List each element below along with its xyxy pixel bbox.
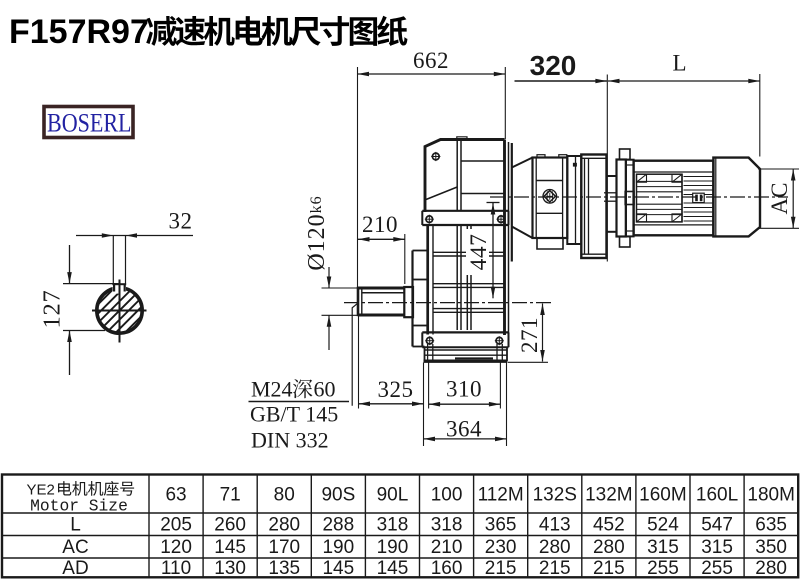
- svg-text:190: 190: [377, 537, 409, 558]
- svg-text:130: 130: [214, 558, 246, 579]
- svg-text:60: 60: [314, 377, 336, 402]
- svg-text:447: 447: [466, 234, 492, 271]
- svg-text:160L: 160L: [696, 485, 738, 506]
- svg-text:230: 230: [485, 537, 517, 558]
- svg-text:364: 364: [446, 417, 482, 442]
- svg-text:524: 524: [647, 515, 679, 536]
- svg-text:255: 255: [647, 558, 679, 579]
- svg-text:DIN 332: DIN 332: [251, 428, 329, 453]
- svg-text:288: 288: [322, 515, 354, 536]
- svg-text:215: 215: [593, 558, 625, 579]
- svg-text:AC: AC: [62, 537, 88, 558]
- svg-text:32: 32: [169, 209, 193, 234]
- svg-text:365: 365: [485, 515, 517, 536]
- svg-text:127: 127: [38, 290, 65, 329]
- svg-text:135: 135: [268, 558, 300, 579]
- svg-text:M24: M24: [251, 377, 293, 402]
- svg-text:271: 271: [517, 317, 542, 353]
- svg-text:280: 280: [755, 558, 787, 579]
- svg-text:318: 318: [377, 515, 409, 536]
- svg-text:90S: 90S: [321, 485, 355, 506]
- svg-text:Motor Size: Motor Size: [30, 497, 128, 516]
- svg-text:63: 63: [165, 485, 186, 506]
- svg-text:452: 452: [593, 515, 625, 536]
- svg-text:145: 145: [377, 558, 409, 579]
- svg-text:310: 310: [446, 377, 482, 402]
- svg-text:160: 160: [431, 558, 463, 579]
- svg-text:210: 210: [431, 537, 463, 558]
- svg-text:280: 280: [539, 537, 571, 558]
- svg-text:350: 350: [755, 537, 787, 558]
- svg-text:90L: 90L: [377, 485, 409, 506]
- svg-text:112M: 112M: [478, 485, 524, 506]
- svg-text:280: 280: [268, 515, 300, 536]
- svg-text:L: L: [70, 515, 81, 536]
- svg-text:L: L: [672, 51, 686, 76]
- svg-text:325: 325: [378, 377, 414, 402]
- svg-text:110: 110: [161, 558, 191, 579]
- svg-text:662: 662: [413, 48, 449, 73]
- svg-text:BOSERL: BOSERL: [47, 109, 132, 138]
- svg-text:255: 255: [701, 558, 733, 579]
- svg-text:210: 210: [362, 212, 398, 237]
- svg-text:320: 320: [530, 50, 577, 81]
- svg-text:635: 635: [755, 515, 787, 536]
- svg-text:80: 80: [274, 485, 295, 506]
- svg-text:AC: AC: [767, 183, 792, 215]
- svg-text:145: 145: [322, 558, 354, 579]
- svg-text:260: 260: [214, 515, 246, 536]
- svg-text:205: 205: [160, 515, 192, 536]
- svg-text:215: 215: [485, 558, 517, 579]
- svg-text:132S: 132S: [533, 485, 577, 506]
- svg-text:318: 318: [431, 515, 463, 536]
- svg-text:100: 100: [431, 485, 463, 506]
- svg-text:315: 315: [647, 537, 679, 558]
- svg-text:AD: AD: [62, 558, 88, 579]
- svg-text:280: 280: [593, 537, 625, 558]
- svg-text:160M: 160M: [639, 485, 687, 506]
- svg-text:GB/T 145: GB/T 145: [250, 402, 338, 427]
- svg-text:315: 315: [701, 537, 733, 558]
- svg-text:145: 145: [214, 537, 246, 558]
- svg-text:215: 215: [539, 558, 571, 579]
- svg-text:170: 170: [268, 537, 300, 558]
- svg-text:180M: 180M: [747, 485, 795, 506]
- svg-text:71: 71: [220, 485, 241, 506]
- svg-text:F157R97: F157R97: [9, 13, 149, 51]
- svg-text:547: 547: [701, 515, 733, 536]
- svg-text:132M: 132M: [585, 485, 633, 506]
- svg-text:190: 190: [322, 537, 354, 558]
- svg-text:413: 413: [539, 515, 571, 536]
- svg-text:120: 120: [160, 537, 192, 558]
